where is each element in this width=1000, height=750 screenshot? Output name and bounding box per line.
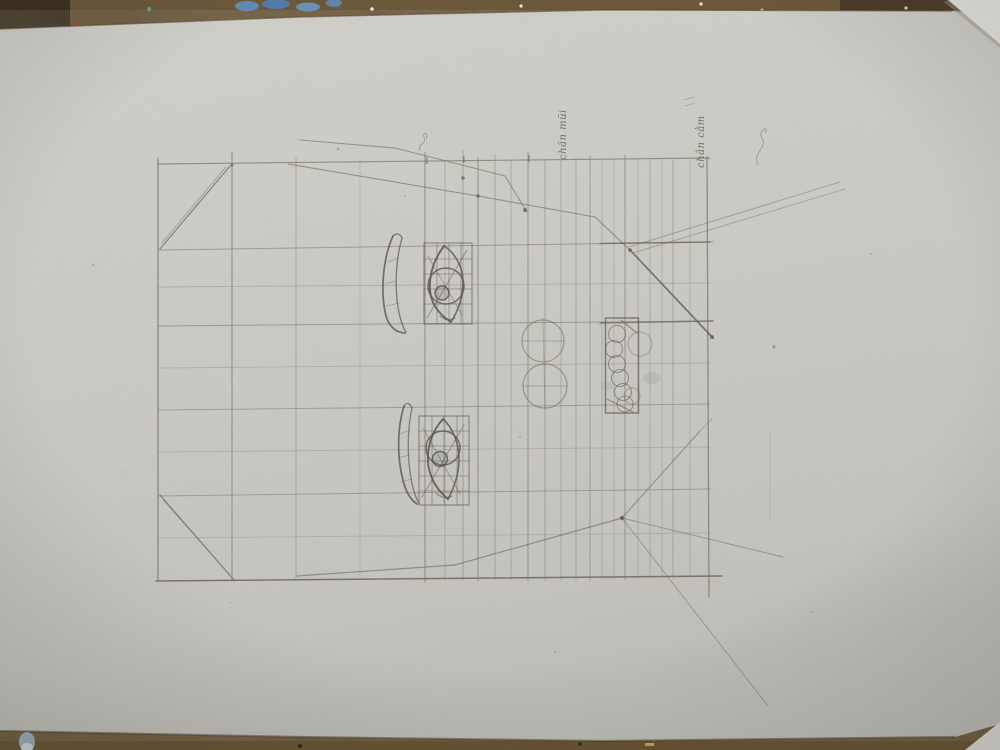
photo-of-sketch: chân mũi chân cằm xyxy=(0,0,1000,750)
photo-vignette xyxy=(0,0,1000,750)
photo-canvas: chân mũi chân cằm xyxy=(0,0,1000,750)
